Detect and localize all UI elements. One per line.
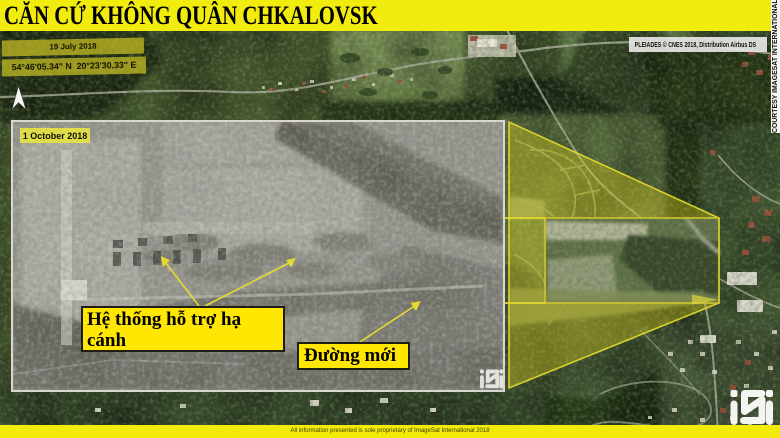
svg-text:1 October 2018: 1 October 2018 <box>23 131 88 141</box>
